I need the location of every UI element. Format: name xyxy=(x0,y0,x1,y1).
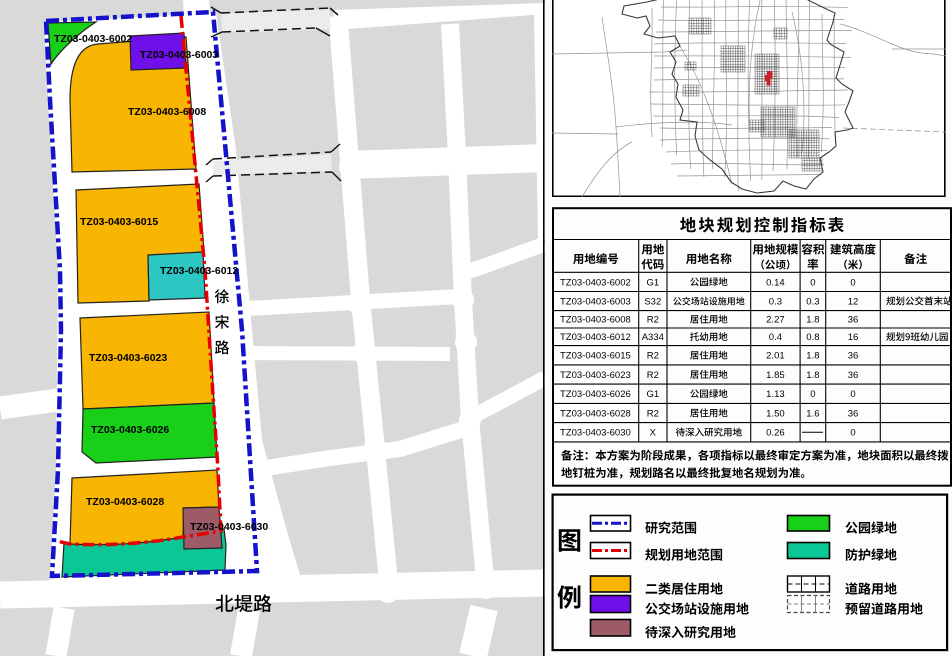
svg-text:R2: R2 xyxy=(647,315,659,326)
svg-text:TZ03-0403-6008: TZ03-0403-6008 xyxy=(128,106,206,118)
svg-text:1.8: 1.8 xyxy=(806,351,819,362)
svg-text:0.3: 0.3 xyxy=(769,296,782,307)
svg-text:0.14: 0.14 xyxy=(766,277,785,288)
svg-text:G1: G1 xyxy=(646,277,659,288)
svg-text:0.4: 0.4 xyxy=(769,332,782,343)
svg-text:1.13: 1.13 xyxy=(766,389,785,400)
svg-text:TZ03-0403-6023: TZ03-0403-6023 xyxy=(89,352,167,364)
svg-text:TZ03-0403-6002: TZ03-0403-6002 xyxy=(54,33,132,45)
svg-text:2.01: 2.01 xyxy=(766,351,785,362)
svg-text:0.3: 0.3 xyxy=(806,296,819,307)
svg-text:1.8: 1.8 xyxy=(806,315,819,326)
svg-text:R2: R2 xyxy=(647,351,659,362)
svg-text:1.85: 1.85 xyxy=(766,370,785,381)
svg-text:R2: R2 xyxy=(647,370,659,381)
svg-text:R2: R2 xyxy=(647,408,659,419)
svg-text:2.27: 2.27 xyxy=(766,315,785,326)
svg-text:A334: A334 xyxy=(642,332,664,343)
svg-text:0.8: 0.8 xyxy=(806,332,819,343)
svg-text:TZ03-0403-6023: TZ03-0403-6023 xyxy=(560,370,631,381)
svg-text:12: 12 xyxy=(848,296,859,307)
svg-text:TZ03-0403-6003: TZ03-0403-6003 xyxy=(140,49,218,61)
svg-text:0: 0 xyxy=(850,277,855,288)
svg-text:0: 0 xyxy=(850,389,855,400)
svg-text:TZ03-0403-6015: TZ03-0403-6015 xyxy=(80,216,158,228)
svg-text:TZ03-0403-6012: TZ03-0403-6012 xyxy=(160,265,238,277)
svg-text:TZ03-0403-6026: TZ03-0403-6026 xyxy=(91,424,169,436)
svg-text:TZ03-0403-6012: TZ03-0403-6012 xyxy=(560,332,631,343)
svg-text:0: 0 xyxy=(810,389,815,400)
svg-text:TZ03-0403-6015: TZ03-0403-6015 xyxy=(560,351,631,362)
svg-text:0: 0 xyxy=(850,428,855,439)
svg-text:TZ03-0403-6028: TZ03-0403-6028 xyxy=(560,408,631,419)
svg-text:G1: G1 xyxy=(646,389,659,400)
svg-text:1.8: 1.8 xyxy=(806,370,819,381)
svg-text:TZ03-0403-6026: TZ03-0403-6026 xyxy=(560,389,631,400)
svg-text:TZ03-0403-6008: TZ03-0403-6008 xyxy=(560,315,631,326)
svg-text:36: 36 xyxy=(848,370,859,381)
svg-text:S32: S32 xyxy=(644,296,661,307)
svg-text:1.6: 1.6 xyxy=(806,408,819,419)
svg-text:TZ03-0403-6003: TZ03-0403-6003 xyxy=(560,296,631,307)
svg-text:36: 36 xyxy=(848,315,859,326)
svg-text:TZ03-0403-6030: TZ03-0403-6030 xyxy=(560,428,631,439)
svg-text:1.50: 1.50 xyxy=(766,408,785,419)
svg-text:TZ03-0403-6030: TZ03-0403-6030 xyxy=(190,521,268,533)
svg-text:36: 36 xyxy=(848,408,859,419)
svg-text:0: 0 xyxy=(810,277,815,288)
svg-text:0.26: 0.26 xyxy=(766,428,785,439)
svg-text:36: 36 xyxy=(848,351,859,362)
svg-text:TZ03-0403-6028: TZ03-0403-6028 xyxy=(86,496,164,508)
svg-text:16: 16 xyxy=(848,332,859,343)
svg-text:TZ03-0403-6002: TZ03-0403-6002 xyxy=(560,277,631,288)
svg-text:X: X xyxy=(650,428,657,439)
